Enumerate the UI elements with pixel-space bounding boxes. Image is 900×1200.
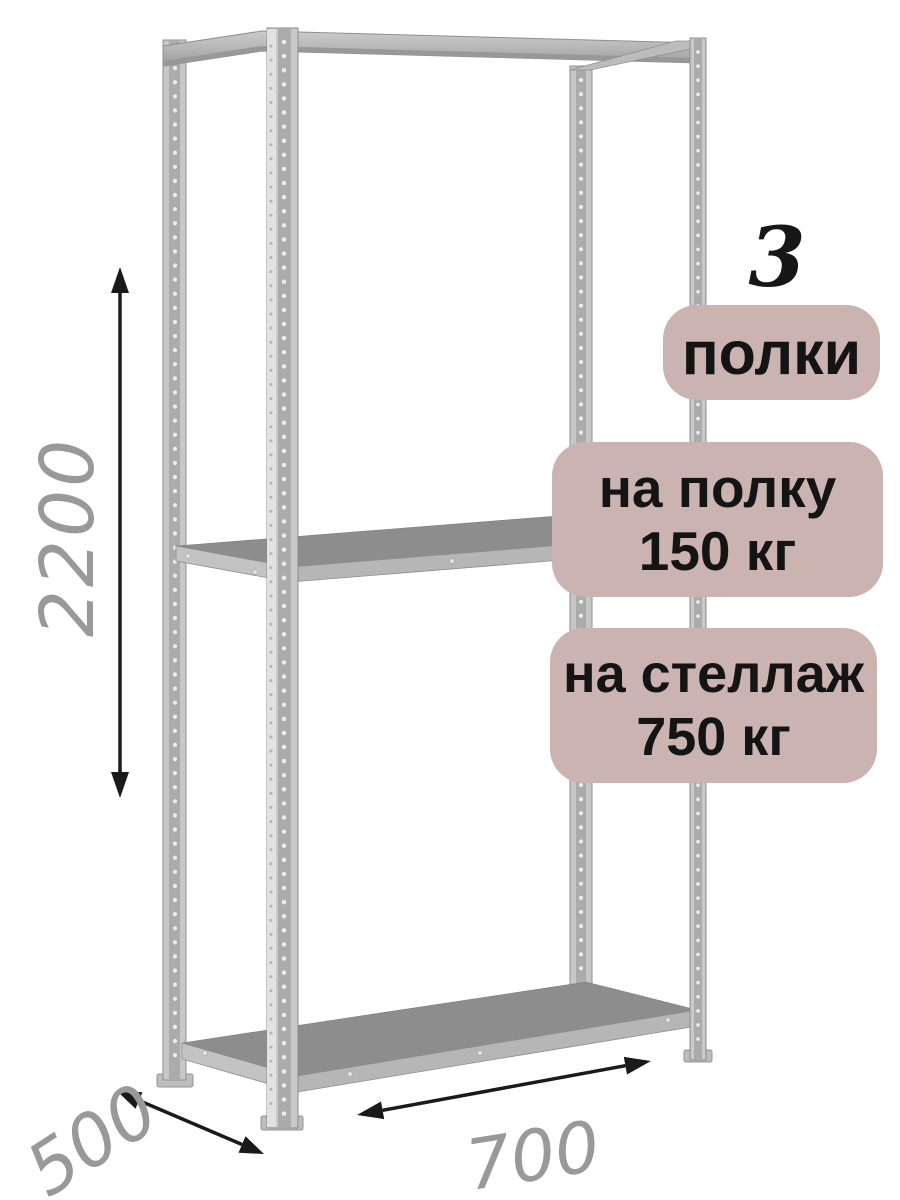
- shelf-count-badge: полки: [663, 305, 880, 400]
- screw: [666, 1018, 671, 1023]
- product-image: 2200 500 700 3 полки на полку 150 кг на …: [0, 0, 900, 1200]
- per-rack-capacity-line1: на стеллаж: [563, 643, 864, 706]
- per-rack-capacity-badge: на стеллаж 750 кг: [550, 628, 877, 783]
- per-shelf-capacity-badge: на полку 150 кг: [552, 442, 883, 597]
- height-dimension-label: 2200: [25, 437, 111, 637]
- shelf-count-value: 3: [748, 210, 805, 306]
- screw: [478, 1051, 483, 1056]
- screw: [203, 1051, 208, 1056]
- screw: [348, 1072, 353, 1077]
- screw: [253, 570, 258, 575]
- per-shelf-capacity-line1: на полку: [599, 457, 837, 520]
- height-dimension-arrow: [111, 267, 129, 798]
- shelf-bottom: [182, 982, 697, 1092]
- shelf-top: [163, 31, 700, 70]
- per-rack-capacity-line2: 750 кг: [636, 706, 791, 769]
- per-shelf-capacity-line2: 150 кг: [639, 520, 796, 583]
- shelving-rack-illustration: [0, 0, 900, 1200]
- screw: [450, 559, 455, 564]
- post-front-left: [261, 28, 303, 1130]
- screw: [186, 554, 191, 559]
- shelf-count-label: полки: [682, 318, 861, 388]
